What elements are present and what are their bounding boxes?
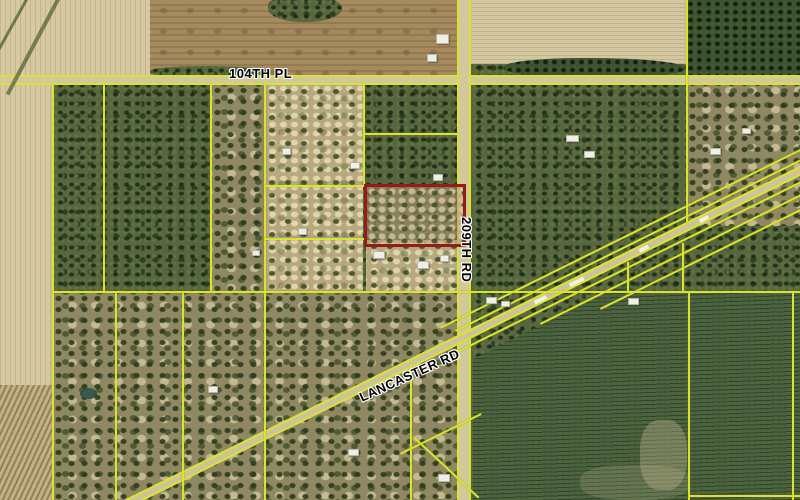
mixed-woods-southwest bbox=[52, 293, 460, 500]
crop-rows-field bbox=[0, 385, 52, 500]
parcel-line bbox=[182, 293, 184, 500]
building bbox=[742, 128, 751, 134]
road-label-209th-rd: 209TH RD bbox=[459, 217, 474, 282]
homestead-clearing-nw bbox=[264, 85, 363, 293]
vehicle bbox=[639, 245, 650, 253]
road-label-104th-pl: 104TH PL bbox=[229, 66, 292, 81]
parcel-line bbox=[264, 238, 366, 240]
highlighted-parcel[interactable] bbox=[364, 184, 466, 247]
aerial-map[interactable]: 104TH PL 209TH RD LANCASTER RD bbox=[0, 0, 800, 500]
building bbox=[298, 228, 307, 235]
forest-top-right bbox=[686, 0, 800, 78]
building bbox=[438, 474, 450, 482]
building bbox=[417, 261, 429, 269]
vehicle bbox=[534, 295, 547, 304]
building bbox=[566, 135, 579, 142]
building bbox=[208, 386, 218, 393]
building bbox=[436, 34, 449, 44]
building bbox=[252, 250, 260, 256]
building bbox=[584, 151, 595, 158]
building bbox=[373, 251, 385, 259]
parcel-line bbox=[52, 291, 800, 293]
pond bbox=[80, 388, 97, 399]
parcel-line bbox=[690, 495, 800, 497]
parcel-line bbox=[210, 85, 212, 293]
parcel-line bbox=[627, 262, 629, 291]
parcel-line bbox=[363, 133, 459, 135]
parcel-line bbox=[686, 0, 688, 222]
plantation-clearing-patch bbox=[580, 465, 690, 500]
building bbox=[348, 449, 359, 456]
building bbox=[433, 174, 443, 181]
homestead-clearing-center bbox=[366, 240, 459, 293]
building bbox=[427, 54, 437, 62]
parcel-line bbox=[410, 364, 412, 500]
building bbox=[710, 148, 721, 155]
building bbox=[282, 148, 291, 155]
parcel-line bbox=[682, 243, 684, 291]
vehicle bbox=[569, 277, 585, 288]
building bbox=[350, 162, 360, 169]
parcel-line bbox=[363, 85, 365, 186]
building bbox=[501, 301, 510, 307]
parcel-line bbox=[688, 291, 690, 500]
building bbox=[486, 297, 497, 304]
road-104th-pl bbox=[0, 75, 800, 85]
cleared-strip-parcel bbox=[211, 85, 265, 293]
parcel-line bbox=[264, 185, 366, 187]
parcel-line bbox=[115, 293, 117, 500]
building bbox=[628, 298, 639, 305]
parcel-line bbox=[792, 291, 794, 500]
field-top-right bbox=[460, 0, 686, 64]
parcel-line bbox=[103, 85, 105, 293]
building bbox=[440, 255, 449, 262]
